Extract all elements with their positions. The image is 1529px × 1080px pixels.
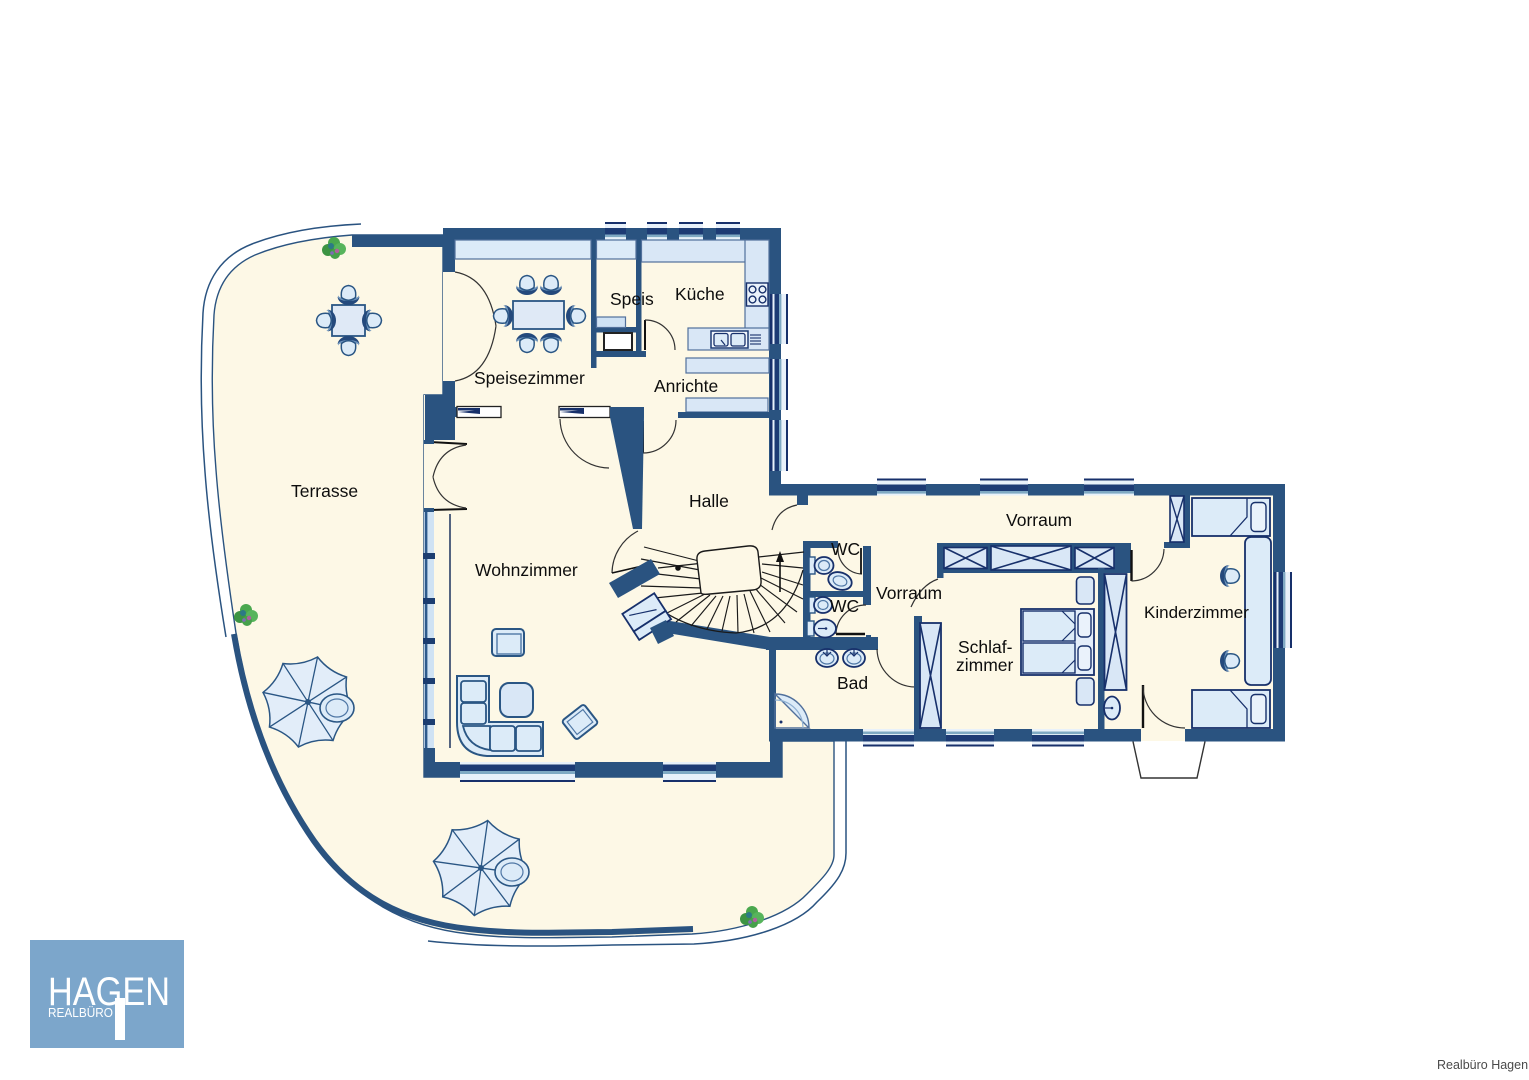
- svg-text:Schlaf-: Schlaf-: [958, 637, 1013, 657]
- svg-text:WC: WC: [831, 539, 860, 559]
- svg-text:Vorraum: Vorraum: [876, 583, 942, 603]
- svg-text:WC: WC: [830, 596, 859, 616]
- svg-text:Kinderzimmer: Kinderzimmer: [1144, 603, 1249, 622]
- svg-text:Vorraum: Vorraum: [1006, 510, 1072, 530]
- svg-text:Halle: Halle: [689, 491, 729, 511]
- svg-text:Terrasse: Terrasse: [291, 481, 358, 501]
- svg-text:REALBÜRO: REALBÜRO: [48, 1005, 113, 1020]
- svg-text:Küche: Küche: [675, 284, 725, 304]
- svg-text:Speisezimmer: Speisezimmer: [474, 368, 585, 388]
- svg-text:Realbüro Hagen: Realbüro Hagen: [1437, 1058, 1528, 1072]
- svg-text:Anrichte: Anrichte: [654, 376, 718, 396]
- svg-text:zimmer: zimmer: [956, 655, 1014, 675]
- svg-text:Bad: Bad: [837, 673, 868, 693]
- svg-text:Wohnzimmer: Wohnzimmer: [475, 560, 578, 580]
- svg-text:Speis: Speis: [610, 289, 654, 309]
